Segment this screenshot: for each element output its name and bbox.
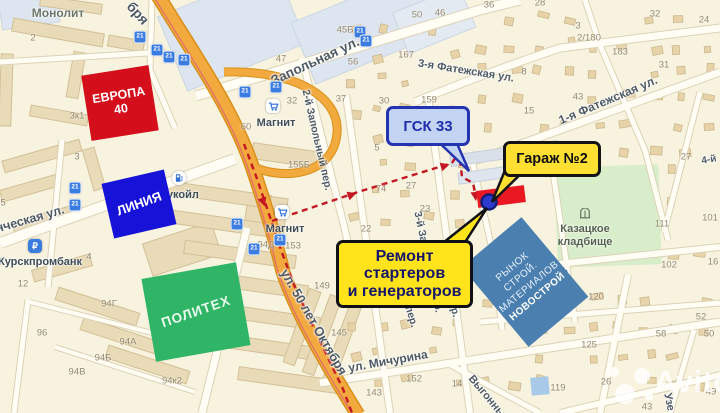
avito-watermark: Avito bbox=[597, 358, 720, 406]
callout-garage-2-text: Гараж №2 bbox=[516, 151, 588, 167]
callout-gsk33: ГСК 33 bbox=[386, 106, 470, 146]
map-canvas: Монолит Лукойл Магнит Магнит Курскпромба… bbox=[0, 0, 720, 413]
avito-watermark-text: Avito bbox=[654, 364, 720, 400]
callout-tails bbox=[0, 0, 720, 413]
callout-repair-line3: и генераторов bbox=[348, 283, 462, 300]
callout-repair-line1: Ремонт bbox=[376, 248, 434, 265]
callout-garage-2: Гараж №2 bbox=[503, 141, 601, 177]
callout-repair-service: Ремонт стартеров и генераторов bbox=[336, 240, 473, 308]
callout-gsk33-text: ГСК 33 bbox=[403, 118, 452, 135]
avito-logo-icon bbox=[597, 358, 653, 406]
callout-repair-line2: стартеров bbox=[364, 265, 445, 282]
